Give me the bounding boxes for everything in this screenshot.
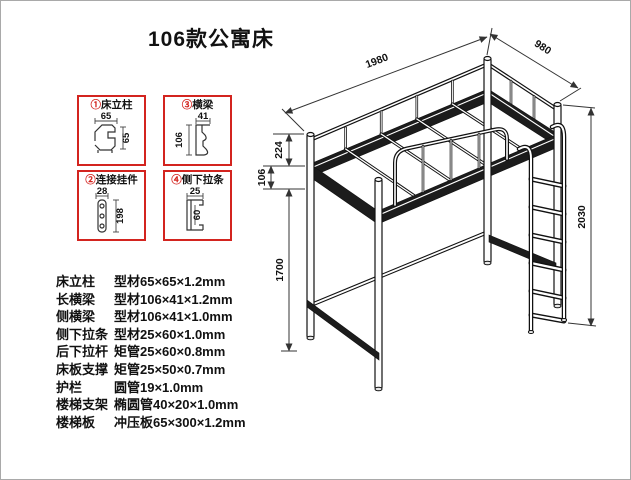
bed-posts (307, 57, 561, 391)
bed-isometric-drawing: 1980 980 2030 224 106 1700 (1, 1, 631, 480)
dim-length-label: 1980 (364, 51, 390, 71)
rear-lower-bar (311, 232, 488, 305)
head-guard-rail (488, 64, 558, 119)
dim-beam-label: 106 (256, 169, 268, 187)
drawing-sheet: 106款公寓床 ①床立柱 65 65 ③横梁 41 106 (0, 0, 631, 480)
dim-rail-label: 224 (273, 141, 285, 159)
dim-clearance-label: 1700 (274, 258, 286, 282)
ladder-left-rail (519, 147, 531, 331)
left-lower-tie-bar (307, 300, 379, 360)
dim-height-label: 2030 (576, 205, 588, 229)
left-side-beam (310, 164, 378, 224)
dim-width-label: 980 (532, 38, 553, 58)
